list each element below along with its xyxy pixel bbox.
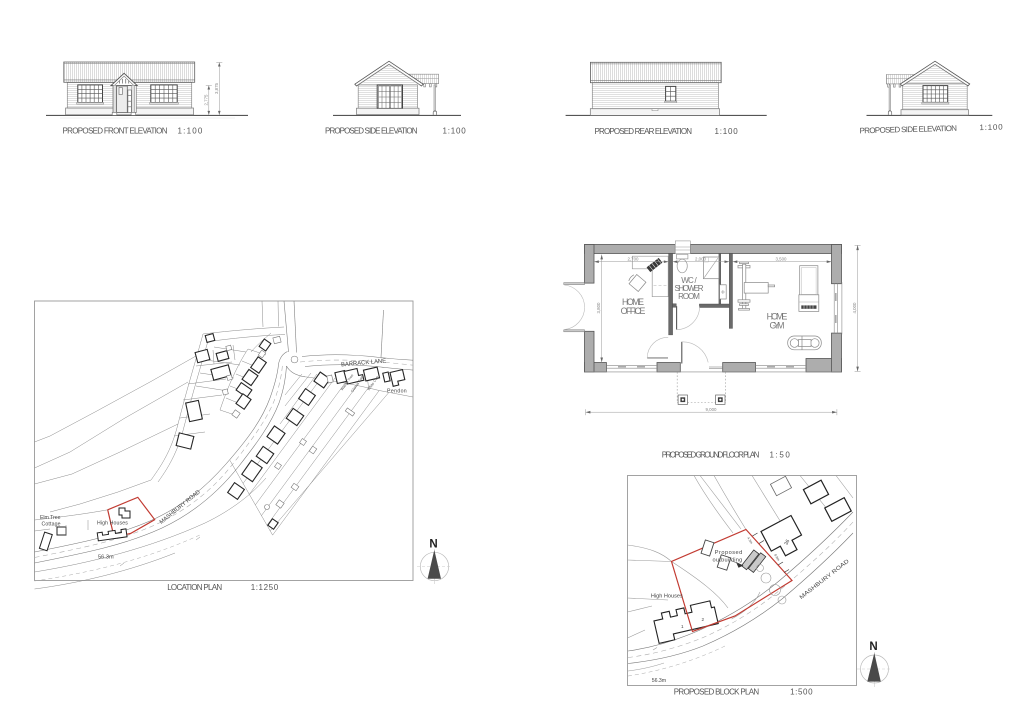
svg-text:1:50: 1:50 (770, 450, 792, 459)
svg-text:56.3m: 56.3m (652, 678, 666, 684)
svg-text:Proposed: Proposed (715, 550, 742, 556)
svg-text:Elm Tree: Elm Tree (40, 515, 61, 521)
svg-text:3,875: 3,875 (214, 82, 219, 94)
svg-text:2: 2 (702, 617, 705, 622)
svg-text:PROPOSED GROUND FLOOR PLAN: PROPOSED GROUND FLOOR PLAN (662, 450, 760, 459)
svg-text:1:500: 1:500 (790, 688, 813, 697)
svg-text:N: N (869, 641, 877, 653)
svg-text:PROPOSED REAR ELEVATION: PROPOSED REAR ELEVATION (595, 127, 693, 136)
svg-text:3,800: 3,800 (596, 302, 601, 314)
svg-text:Cottage: Cottage (42, 522, 61, 528)
svg-text:ROOM: ROOM (678, 292, 700, 301)
svg-text:outbuilding: outbuilding (713, 558, 743, 564)
svg-text:1:100: 1:100 (443, 127, 467, 136)
svg-text:2,700: 2,700 (628, 256, 640, 261)
svg-text:PROPOSED FRONT ELEVATION: PROPOSED FRONT ELEVATION (63, 127, 168, 136)
svg-text:PROPOSED SIDE ELEVATION: PROPOSED SIDE ELEVATION (325, 127, 418, 136)
svg-text:3,500: 3,500 (776, 256, 788, 261)
svg-text:1:100: 1:100 (979, 123, 1003, 133)
svg-text:GYM: GYM (770, 321, 785, 331)
svg-text:Pendon: Pendon (387, 389, 407, 395)
svg-text:9,000: 9,000 (706, 407, 718, 412)
svg-text:2,775: 2,775 (204, 94, 209, 106)
svg-text:1:100: 1:100 (178, 127, 204, 136)
svg-text:1: 1 (681, 624, 684, 629)
svg-text:56.3m: 56.3m (98, 555, 114, 561)
svg-text:LOCATION PLAN: LOCATION PLAN (167, 583, 222, 592)
svg-text:4,000: 4,000 (852, 302, 857, 314)
svg-text:1:100: 1:100 (715, 127, 739, 136)
svg-text:OFFICE: OFFICE (621, 306, 646, 316)
svg-text:High Houses: High Houses (97, 521, 128, 527)
svg-text:1:1250: 1:1250 (251, 583, 279, 592)
svg-text:PROPOSED BLOCK PLAN: PROPOSED BLOCK PLAN (674, 688, 760, 697)
svg-text:N: N (429, 539, 437, 551)
svg-text:2,000: 2,000 (695, 256, 707, 261)
svg-text:High Houses: High Houses (651, 594, 683, 600)
